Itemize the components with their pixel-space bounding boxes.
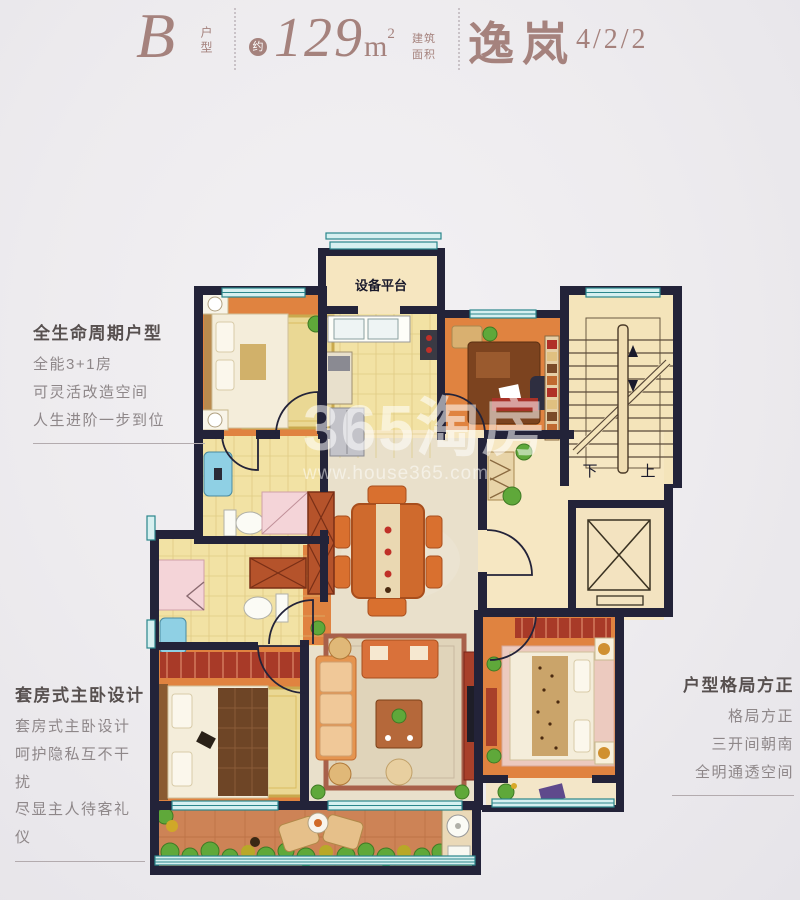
stove: [420, 330, 438, 360]
note-line: 呵护隐私互不干扰: [15, 741, 145, 797]
note-master-suite: 套房式主卧设计 套房式主卧设计 呵护隐私互不干扰 尽显主人待客礼仪: [15, 681, 145, 862]
note-rule: [33, 443, 205, 444]
window-living-balcony: [328, 801, 462, 810]
area-unit: m: [364, 30, 387, 63]
window-equipment-outer: [326, 233, 441, 249]
area-type-label: 建筑 面积: [412, 32, 436, 64]
header-divider: [458, 8, 460, 70]
tv: [467, 686, 474, 742]
unit-type-label: 户型: [198, 26, 215, 56]
approx-badge: 约: [249, 38, 267, 56]
elevator: [572, 504, 668, 612]
toilet: [244, 597, 272, 619]
bed-headboard: [158, 684, 168, 800]
side-table: [329, 637, 351, 659]
stairs-up-label: 上: [640, 463, 655, 480]
note-layout: 户型格局方正 格局方正 三开间朝南 全明通透空间: [672, 671, 794, 796]
window-west-2: [147, 620, 155, 648]
coffee-table: [376, 700, 422, 748]
master-bedroom-furniture: [158, 652, 304, 800]
drain: [250, 837, 260, 847]
area-figure: 129m2: [274, 6, 395, 70]
note-line: 格局方正: [672, 703, 794, 731]
window-bedroom-north: [222, 288, 305, 297]
header-divider: [234, 8, 236, 70]
note-title: 户型格局方正: [672, 671, 794, 696]
note-line: 全能3+1房: [33, 351, 205, 379]
toilet: [236, 512, 264, 534]
door-mat: [492, 398, 538, 411]
window-balcony-rail: [155, 856, 475, 865]
window-west-1: [147, 516, 155, 540]
note-title: 套房式主卧设计: [15, 681, 145, 706]
window-stairwell: [586, 288, 660, 297]
cabinet: [486, 688, 497, 746]
living-room-furniture: [311, 621, 477, 799]
window-master-balcony: [172, 801, 278, 810]
ottoman: [386, 759, 412, 785]
shower-area: [158, 560, 204, 610]
note-lifecycle: 全生命周期户型 全能3+1房 可灵活改造空间 人生进阶一步到位: [33, 319, 205, 444]
window-study: [470, 310, 536, 318]
note-rule: [15, 861, 145, 862]
area-value: 129: [274, 7, 364, 69]
note-line: 尽显主人待客礼仪: [15, 796, 145, 852]
side-table: [329, 763, 351, 785]
note-line: 套房式主卧设计: [15, 713, 145, 741]
note-line: 三开间朝南: [672, 731, 794, 759]
note-title: 全生命周期户型: [33, 319, 205, 344]
unit-letter: B: [136, 2, 175, 69]
note-line: 全明通透空间: [672, 759, 794, 787]
area-exponent: 2: [387, 26, 395, 42]
note-line: 人生进阶一步到位: [33, 407, 205, 435]
project-name: 逸岚: [468, 8, 576, 74]
layout-code: 4/2/2: [576, 24, 649, 56]
stairs-down-label: 下: [582, 463, 597, 480]
equipment-platform-label: 设备平台: [355, 278, 407, 293]
note-rule: [672, 795, 794, 796]
window-bay: [492, 799, 614, 807]
note-line: 可灵活改造空间: [33, 379, 205, 407]
